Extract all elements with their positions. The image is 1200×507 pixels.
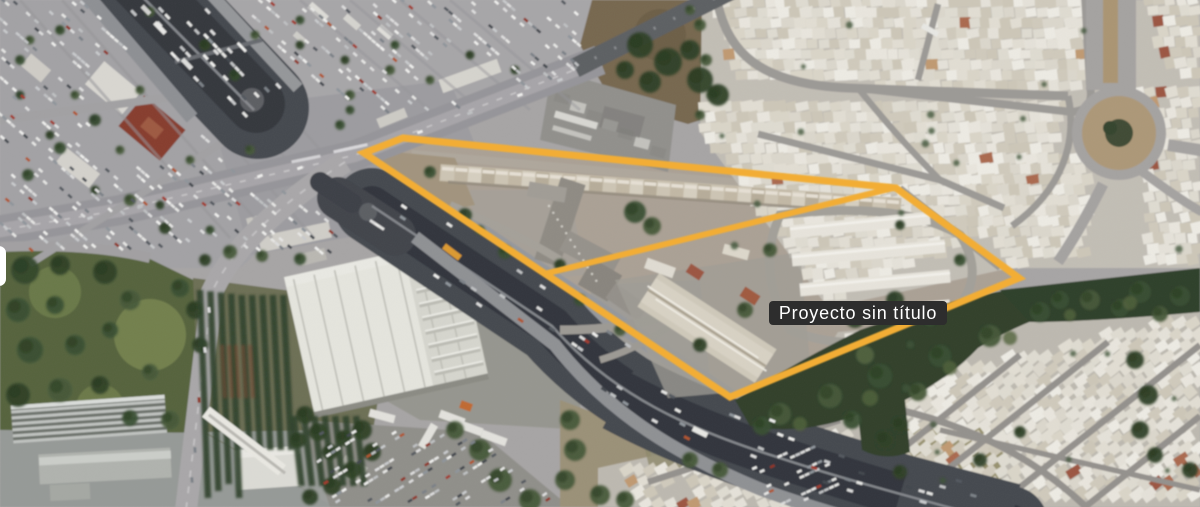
svg-text:Proyecto sin título: Proyecto sin título [779, 303, 937, 323]
